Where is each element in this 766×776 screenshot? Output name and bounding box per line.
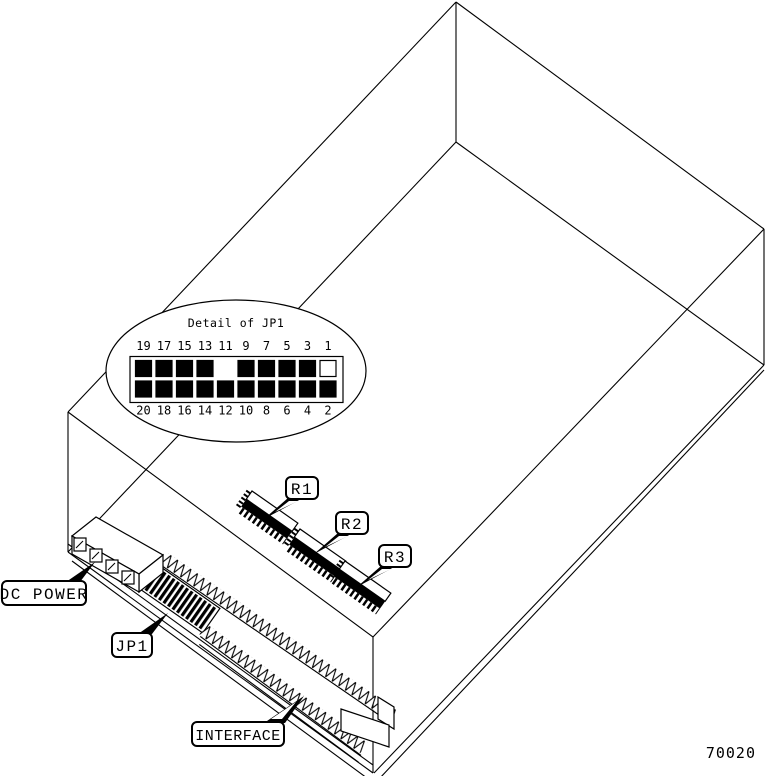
callout-dc-power: DC POWER: [0, 562, 95, 605]
dc-power-pointer: [66, 562, 95, 582]
jp1-detail-pin-number-20: 20: [136, 404, 150, 418]
jp1-detail-pin-number-13: 13: [198, 339, 212, 353]
interface-label: INTERFACE: [195, 728, 281, 745]
edge-bottom-front-right-b: [379, 370, 764, 776]
callout-jp1: JP1: [112, 613, 168, 657]
jp1-detail-pin-number-7: 7: [263, 339, 270, 353]
jp1-detail-pin-18: [156, 381, 172, 397]
jp1-detail-pin-number-9: 9: [242, 339, 249, 353]
jp1-detail-pin-1: [320, 361, 336, 377]
figure-number: 70020: [706, 744, 756, 762]
jp1-pointer: [138, 613, 168, 634]
jp1-detail-pin-number-1: 1: [324, 339, 331, 353]
jp1-detail-pin-number-12: 12: [218, 404, 232, 418]
jp1-detail-pin-7: [259, 361, 275, 377]
jp1-detail-pin-number-8: 8: [263, 404, 270, 418]
jp1-detail-pin-14: [197, 381, 213, 397]
jp1-detail-pin-number-10: 10: [239, 404, 253, 418]
jp1-detail-pin-number-17: 17: [157, 339, 171, 353]
r2-label: R2: [341, 516, 363, 534]
callout-r1: R1: [264, 477, 318, 519]
callout-r3: R3: [357, 545, 411, 587]
jp1-detail-callout: Detail of JP1 191715131197531 2018161412…: [106, 300, 366, 442]
jp1-detail-pin-number-16: 16: [177, 404, 191, 418]
jp1-detail-pin-number-2: 2: [324, 404, 331, 418]
jp1-detail-pin-4: [300, 381, 316, 397]
jp1-detail-pin-5: [279, 361, 295, 377]
edge-bottom-back-right: [456, 142, 764, 365]
jp1-detail-pin-19: [136, 361, 152, 377]
detail-title: Detail of JP1: [188, 316, 285, 330]
r1-label: R1: [291, 481, 313, 499]
jp1-detail-pin-20: [136, 381, 152, 397]
jp1-detail-pin-17: [156, 361, 172, 377]
edge-bottom-front-right-a: [374, 365, 764, 773]
callout-r2: R2: [314, 512, 368, 554]
jp1-detail-pin-9: [238, 361, 254, 377]
jp1-detail-pin-8: [259, 381, 275, 397]
jp1-detail-pin-number-14: 14: [198, 404, 212, 418]
jp1-detail-pin-15: [177, 361, 193, 377]
jp1-detail-pin-number-18: 18: [157, 404, 171, 418]
jp1-detail-pin-16: [177, 381, 193, 397]
jp1-detail-pin-2: [320, 381, 336, 397]
jp1-detail-pin-number-6: 6: [283, 404, 290, 418]
diagram-svg: Detail of JP1 191715131197531 2018161412…: [0, 0, 766, 776]
dc-power-label: DC POWER: [0, 586, 88, 604]
r3-label: R3: [384, 549, 406, 567]
jp1-detail-pin-12: [218, 381, 234, 397]
jp1-detail-pin-number-19: 19: [136, 339, 150, 353]
jp1-detail-pin-3: [300, 361, 316, 377]
jp1-detail-pin-number-5: 5: [283, 339, 290, 353]
drive-isometric-diagram: Detail of JP1 191715131197531 2018161412…: [0, 0, 766, 776]
dc-power-connector: [72, 517, 163, 592]
jp1-detail-pin-13: [197, 361, 213, 377]
jp1-detail-pin-number-15: 15: [177, 339, 191, 353]
jp1-detail-pin-10: [238, 381, 254, 397]
jp1-detail-pin-number-3: 3: [304, 339, 311, 353]
jp1-detail-pin-6: [279, 381, 295, 397]
jp1-detail-pin-number-11: 11: [218, 339, 232, 353]
jp1-label: JP1: [115, 638, 148, 656]
jp1-detail-pin-number-4: 4: [304, 404, 311, 418]
edge-top-right: [456, 2, 764, 229]
